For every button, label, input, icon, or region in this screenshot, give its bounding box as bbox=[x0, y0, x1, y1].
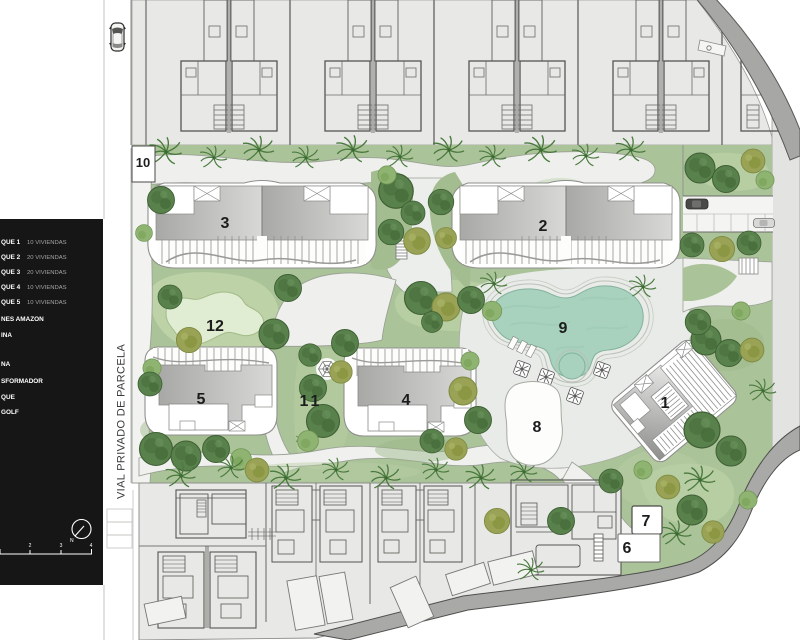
svg-text:SFORMADOR: SFORMADOR bbox=[1, 378, 43, 385]
svg-text:2: 2 bbox=[539, 218, 548, 235]
svg-text:NA: NA bbox=[1, 361, 11, 368]
svg-text:VIAL PRIVADO DE PARCELA: VIAL PRIVADO DE PARCELA bbox=[116, 344, 128, 499]
svg-text:4: 4 bbox=[90, 543, 93, 549]
svg-text:8: 8 bbox=[533, 419, 542, 436]
svg-text:7: 7 bbox=[642, 513, 651, 530]
svg-text:10 VIVIENDAS: 10 VIVIENDAS bbox=[27, 300, 67, 306]
svg-text:QUE 4: QUE 4 bbox=[1, 284, 21, 291]
svg-text:GOLF: GOLF bbox=[1, 409, 19, 416]
svg-text:3: 3 bbox=[60, 543, 63, 549]
svg-text:5: 5 bbox=[197, 391, 206, 408]
svg-text:QUE: QUE bbox=[1, 394, 16, 401]
svg-text:10: 10 bbox=[136, 155, 150, 170]
svg-text:11: 11 bbox=[300, 393, 323, 410]
svg-text:1: 1 bbox=[661, 395, 670, 412]
svg-text:6: 6 bbox=[623, 540, 632, 557]
svg-text:N: N bbox=[70, 538, 74, 544]
svg-text:QUE 3: QUE 3 bbox=[1, 269, 21, 276]
svg-text:4: 4 bbox=[402, 392, 411, 409]
svg-text:QUE 2: QUE 2 bbox=[1, 254, 21, 261]
svg-text:9: 9 bbox=[559, 320, 568, 337]
svg-text:12: 12 bbox=[206, 318, 224, 335]
svg-text:10 VIVIENDAS: 10 VIVIENDAS bbox=[27, 285, 67, 291]
svg-text:20 VIVIENDAS: 20 VIVIENDAS bbox=[27, 270, 67, 276]
svg-text:QUE 1: QUE 1 bbox=[1, 239, 21, 246]
svg-text:2: 2 bbox=[29, 543, 32, 549]
svg-text:NES AMAZON: NES AMAZON bbox=[1, 316, 44, 323]
svg-text:QUE 5: QUE 5 bbox=[1, 299, 21, 306]
svg-text:INA: INA bbox=[1, 332, 12, 339]
svg-text:10 VIVIENDAS: 10 VIVIENDAS bbox=[27, 240, 67, 246]
svg-text:3: 3 bbox=[221, 215, 230, 232]
svg-text:20 VIVIENDAS: 20 VIVIENDAS bbox=[27, 255, 67, 261]
